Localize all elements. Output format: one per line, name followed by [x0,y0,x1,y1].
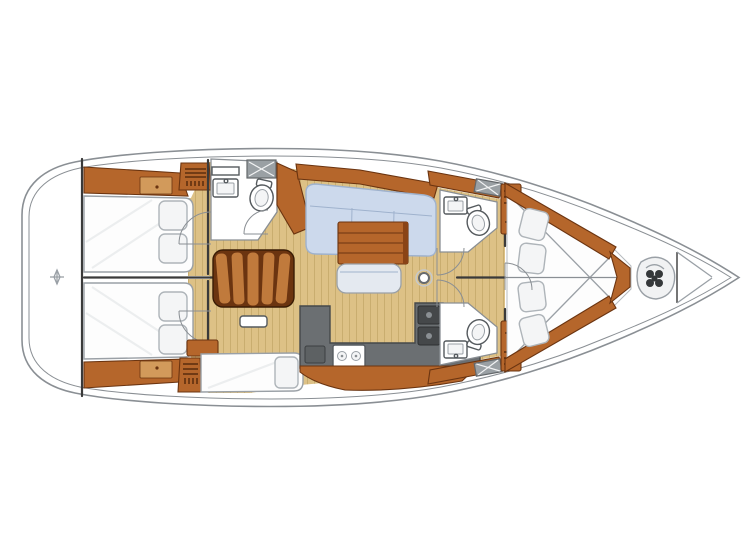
pillow [159,325,187,354]
mast-post [416,270,432,286]
galley-sink [305,346,325,363]
page: { "page": { "background": "#ffffff", "al… [0,0,747,560]
floor-plan-svg [0,0,747,560]
pillow [159,201,187,230]
aft-port-berth [84,196,193,272]
pillow [275,357,298,388]
aft-head [211,159,311,240]
galley-stove [333,345,365,367]
aft-head-shelf [212,167,239,175]
head-starboard-sink [444,341,467,358]
salon-table [338,222,408,264]
aft-cabin-port [84,160,211,274]
aft-port-louvered-locker [179,163,211,190]
aft-starboard-louvered-locker [178,358,202,392]
shelf-knob [155,185,158,188]
aft-port-shelf-panel [140,177,172,194]
pillow [159,234,187,263]
aft-head-sink [213,179,238,197]
deck-hatch [247,160,276,178]
bottom-step [240,316,267,327]
cushion [517,243,546,275]
aft-starboard-berth [84,283,193,359]
shelf-knob [155,366,158,369]
boat-floor-plan [0,0,747,560]
single-berth [201,353,303,392]
head-port-sink [444,197,467,214]
salon-bench [337,264,401,293]
pillow [159,292,187,321]
table-edge [403,222,408,264]
aft-starboard-shelf-panel [140,361,172,378]
